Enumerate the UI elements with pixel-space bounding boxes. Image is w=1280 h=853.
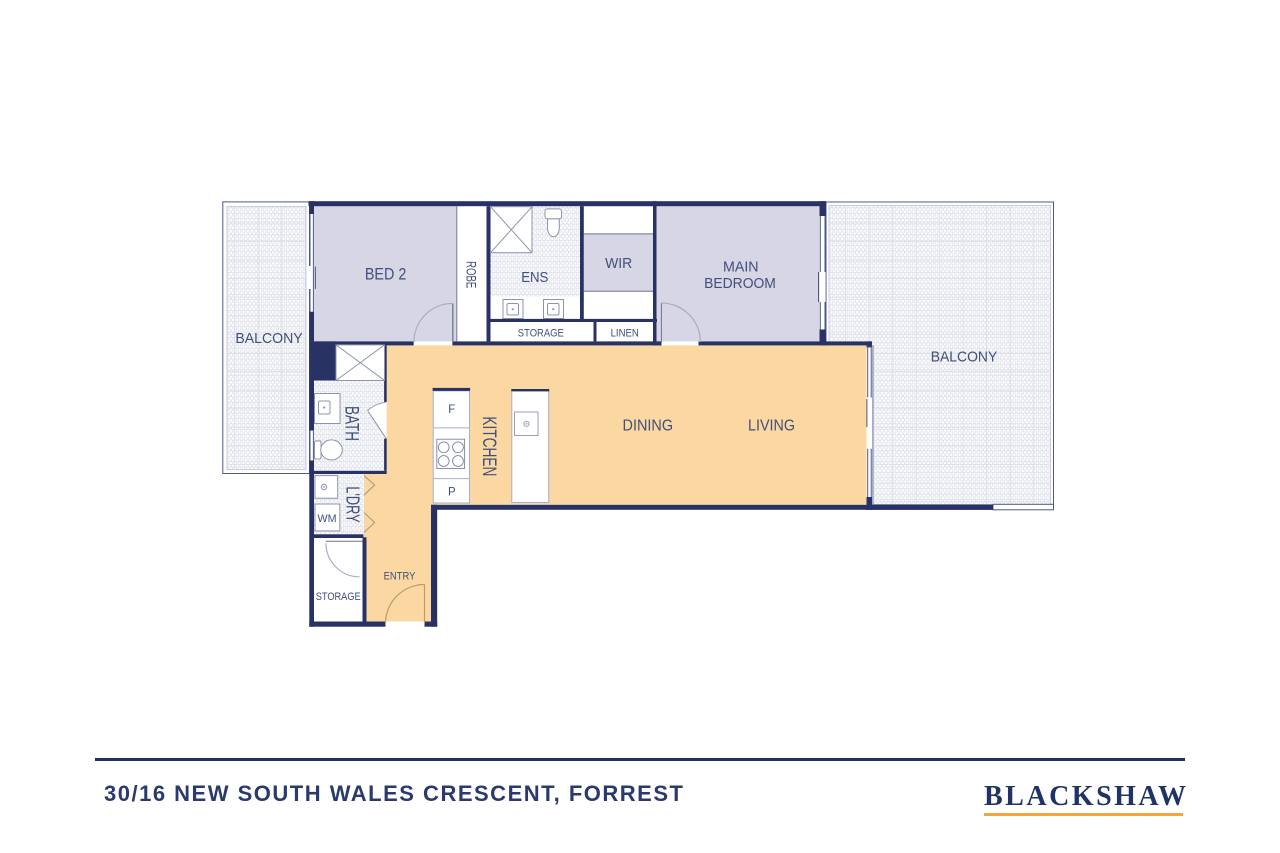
svg-text:BEDROOM: BEDROOM <box>704 275 776 292</box>
svg-text:L'DRY: L'DRY <box>342 486 362 522</box>
svg-text:ENTRY: ENTRY <box>384 571 416 583</box>
svg-text:BED 2: BED 2 <box>365 266 407 284</box>
svg-text:LINEN: LINEN <box>611 327 639 339</box>
svg-text:MAIN: MAIN <box>723 259 759 276</box>
svg-text:WM: WM <box>318 513 337 525</box>
svg-text:WIR: WIR <box>605 255 632 272</box>
svg-text:STORAGE: STORAGE <box>316 591 361 603</box>
svg-text:BATH: BATH <box>341 406 362 441</box>
svg-text:F: F <box>448 404 455 416</box>
svg-text:P: P <box>448 487 456 499</box>
svg-text:ROBE: ROBE <box>463 261 479 288</box>
svg-text:KITCHEN: KITCHEN <box>478 416 499 476</box>
svg-text:STORAGE: STORAGE <box>518 327 564 339</box>
svg-text:DINING: DINING <box>623 418 674 435</box>
svg-text:BALCONY: BALCONY <box>931 350 998 366</box>
svg-text:BALCONY: BALCONY <box>235 331 303 347</box>
svg-text:LIVING: LIVING <box>748 418 795 435</box>
svg-text:ENS: ENS <box>521 269 548 286</box>
